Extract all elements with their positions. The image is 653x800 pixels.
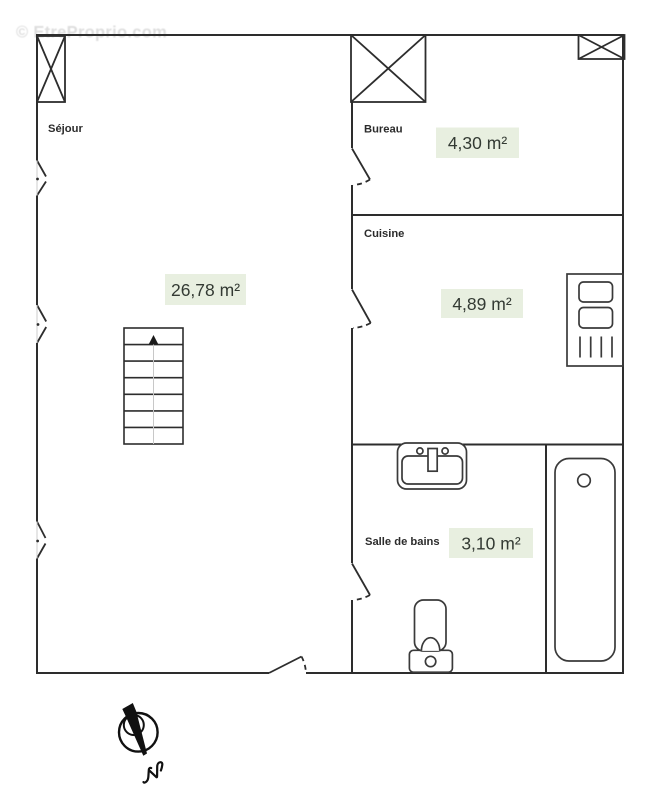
- svg-text:26,78 m²: 26,78 m²: [171, 280, 240, 300]
- svg-text:Salle de bains: Salle de bains: [365, 536, 440, 548]
- svg-text:4,30 m²: 4,30 m²: [448, 133, 507, 153]
- svg-text:Séjour: Séjour: [48, 123, 83, 135]
- svg-text:Bureau: Bureau: [364, 124, 403, 136]
- svg-text:4,89 m²: 4,89 m²: [452, 294, 511, 314]
- svg-text:Cuisine: Cuisine: [364, 228, 404, 240]
- svg-text:3,10 m²: 3,10 m²: [461, 534, 520, 554]
